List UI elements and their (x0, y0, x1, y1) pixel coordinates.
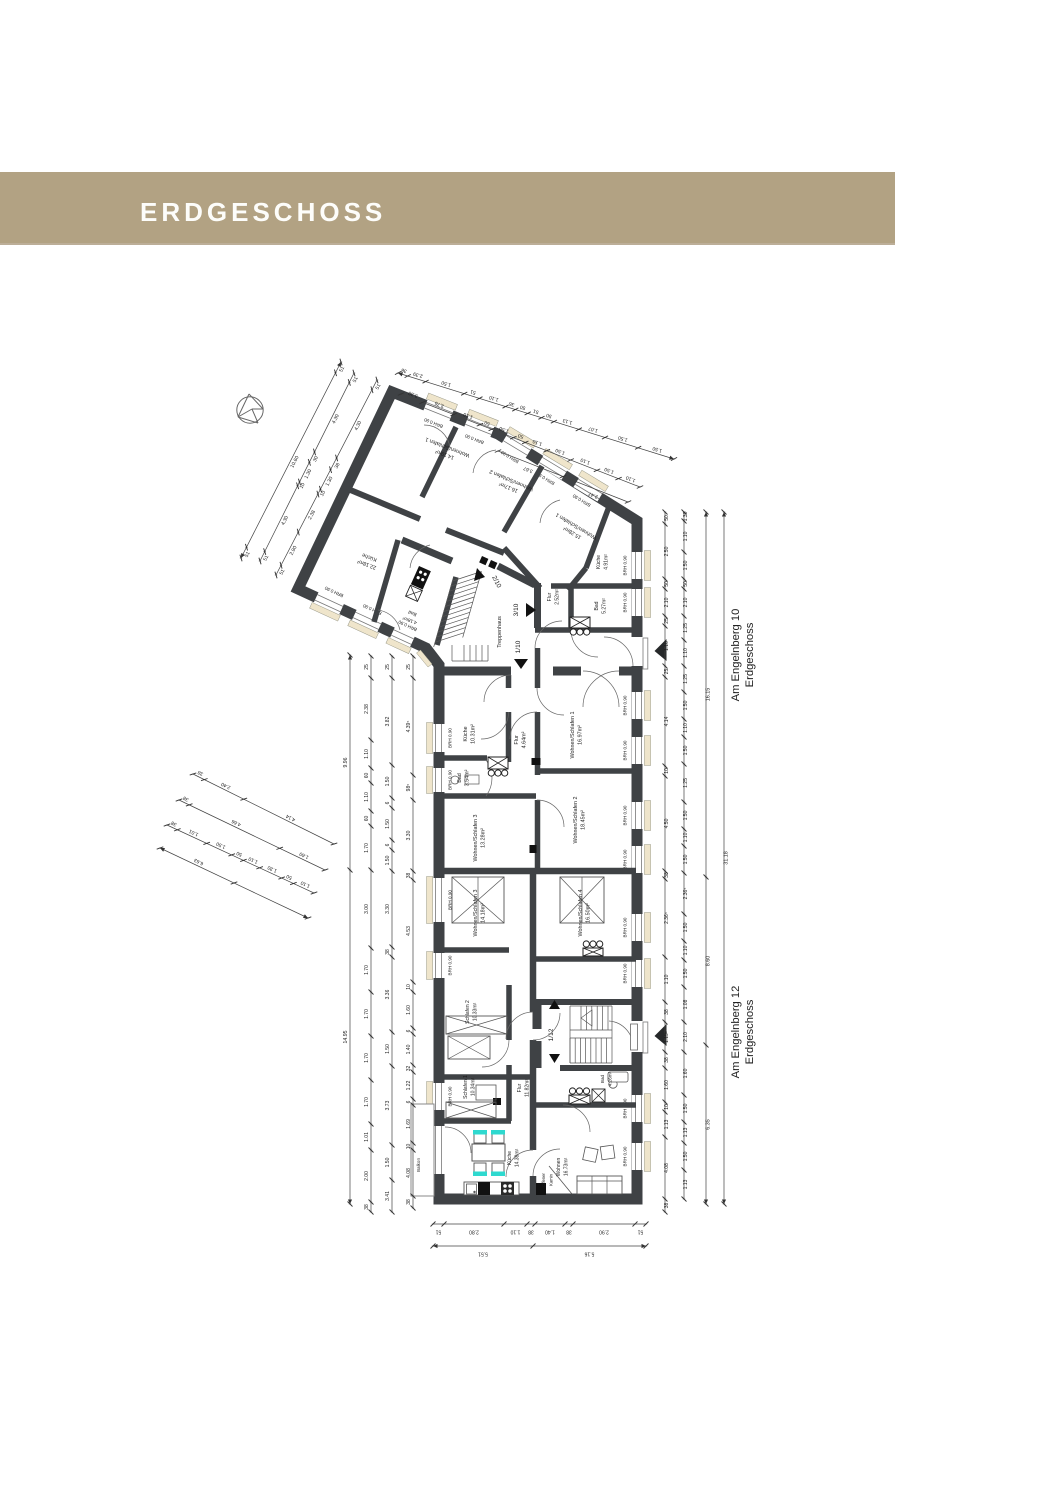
svg-text:50: 50 (664, 515, 670, 521)
svg-text:13.28m²: 13.28m² (481, 828, 487, 848)
svg-text:Küche: Küche (596, 555, 602, 569)
svg-text:6: 6 (385, 843, 391, 846)
svg-text:1.10: 1.10 (364, 792, 370, 802)
svg-text:2.00: 2.00 (364, 1171, 370, 1181)
svg-text:16.15: 16.15 (705, 688, 711, 702)
svg-text:1.10: 1.10 (364, 749, 370, 759)
svg-text:25: 25 (364, 664, 370, 670)
svg-text:1.60: 1.60 (683, 1068, 689, 1078)
svg-text:1.70: 1.70 (364, 843, 370, 853)
svg-text:1.50: 1.50 (385, 776, 391, 786)
svg-text:1.10: 1.10 (683, 531, 689, 541)
svg-text:2.36⁵: 2.36⁵ (683, 888, 689, 900)
svg-text:Treppenhaus: Treppenhaus (497, 616, 503, 648)
svg-text:Erdgeschoss: Erdgeschoss (744, 999, 756, 1064)
svg-text:1/10: 1/10 (515, 640, 522, 653)
svg-text:2.36⁵: 2.36⁵ (664, 912, 670, 924)
svg-text:Bad: Bad (600, 1074, 605, 1083)
svg-text:10.31m²: 10.31m² (471, 724, 477, 744)
svg-text:14.38m²: 14.38m² (515, 1148, 521, 1167)
svg-text:1.60: 1.60 (406, 1005, 412, 1015)
svg-text:BRH 0.90: BRH 0.90 (623, 1098, 628, 1118)
svg-text:BRH 0.90: BRH 0.90 (623, 1146, 628, 1166)
svg-text:1.19⁵: 1.19⁵ (664, 1031, 670, 1043)
svg-text:6: 6 (406, 1100, 412, 1103)
svg-text:1.70: 1.70 (364, 1097, 370, 1107)
svg-text:11.82m²: 11.82m² (525, 1079, 531, 1097)
svg-text:1.70: 1.70 (364, 965, 370, 975)
svg-text:38: 38 (664, 1057, 670, 1063)
svg-text:BRH 0.90: BRH 0.90 (623, 849, 628, 869)
svg-text:4.39⁵: 4.39⁵ (406, 721, 412, 733)
svg-text:2.50: 2.50 (664, 546, 670, 556)
svg-text:6.35: 6.35 (705, 1119, 711, 1130)
svg-text:6: 6 (385, 801, 391, 804)
svg-text:4.14: 4.14 (664, 716, 670, 726)
svg-text:BRH 0.90: BRH 0.90 (623, 917, 628, 937)
svg-text:25: 25 (385, 664, 391, 670)
svg-text:1.50: 1.50 (683, 922, 689, 932)
svg-text:Küche: Küche (463, 726, 469, 741)
svg-text:1.60: 1.60 (664, 1080, 670, 1090)
svg-text:38: 38 (566, 1229, 572, 1235)
svg-text:3.41: 3.41 (385, 1191, 391, 1201)
svg-text:5.27m²: 5.27m² (602, 598, 608, 614)
svg-text:10: 10 (406, 984, 412, 990)
svg-text:1.13: 1.13 (683, 1179, 689, 1189)
svg-text:BRH 0.90: BRH 0.90 (623, 592, 628, 612)
svg-text:31.18: 31.18 (723, 851, 729, 865)
svg-text:98⁵: 98⁵ (406, 784, 412, 792)
svg-text:5.51: 5.51 (478, 1251, 488, 1257)
svg-text:1.10: 1.10 (664, 641, 670, 651)
svg-text:1.50: 1.50 (683, 1151, 689, 1161)
svg-text:38: 38 (385, 949, 391, 955)
svg-text:1.50: 1.50 (683, 968, 689, 978)
svg-text:1.40: 1.40 (406, 1044, 412, 1054)
svg-text:Flur: Flur (517, 1083, 523, 1092)
svg-text:1.50: 1.50 (683, 810, 689, 820)
svg-text:3.73: 3.73 (385, 1100, 391, 1110)
svg-text:51: 51 (436, 1229, 442, 1235)
svg-text:BRH 0.90: BRH 0.90 (448, 770, 453, 790)
svg-text:1.01: 1.01 (364, 1132, 370, 1142)
svg-text:3.30: 3.30 (406, 830, 412, 840)
svg-text:Wohnen/Schlafen 2: Wohnen/Schlafen 2 (573, 797, 579, 844)
svg-text:10.34m²: 10.34m² (471, 1077, 477, 1096)
svg-text:3/10: 3/10 (513, 603, 520, 616)
svg-text:25: 25 (664, 669, 670, 675)
svg-text:ERDGESCHOSS: ERDGESCHOSS (140, 197, 386, 227)
svg-text:60: 60 (364, 816, 370, 822)
svg-text:Flur: Flur (547, 592, 553, 601)
svg-text:3.82: 3.82 (385, 716, 391, 726)
svg-text:Wohnen/Schlafen 3: Wohnen/Schlafen 3 (473, 815, 479, 862)
svg-text:38: 38 (406, 1199, 412, 1205)
svg-text:BRH 0.90: BRH 0.90 (623, 805, 628, 825)
svg-text:1.10: 1.10 (664, 974, 670, 984)
svg-text:9.96: 9.96 (343, 757, 349, 767)
svg-text:BRH 0.90: BRH 0.90 (448, 728, 453, 748)
svg-text:BRH 0.90: BRH 0.90 (623, 963, 628, 983)
svg-text:2.80: 2.80 (469, 1229, 479, 1235)
svg-text:1.22: 1.22 (406, 1080, 412, 1090)
svg-text:2.10: 2.10 (683, 1032, 689, 1042)
svg-text:1.50: 1.50 (683, 854, 689, 864)
svg-text:38: 38 (528, 1229, 534, 1235)
svg-text:BRH 0.90: BRH 0.90 (623, 740, 628, 760)
svg-text:Schlafen 1: Schlafen 1 (463, 1075, 469, 1099)
svg-text:10.33m²: 10.33m² (473, 1002, 479, 1021)
svg-text:32: 32 (406, 1066, 412, 1072)
svg-text:1.50: 1.50 (683, 1103, 689, 1113)
svg-text:1.08: 1.08 (683, 999, 689, 1009)
svg-text:2.52m²: 2.52m² (555, 589, 561, 605)
svg-text:Küche: Küche (507, 1151, 513, 1165)
svg-text:16.97m²: 16.97m² (578, 725, 584, 745)
svg-text:25: 25 (664, 618, 670, 624)
svg-text:6: 6 (406, 1029, 412, 1032)
svg-text:38: 38 (664, 1203, 670, 1209)
svg-text:1.40: 1.40 (545, 1229, 555, 1235)
svg-text:51: 51 (638, 1229, 644, 1235)
svg-text:1.50: 1.50 (385, 1157, 391, 1167)
svg-text:1.10: 1.10 (683, 945, 689, 955)
svg-text:14.95: 14.95 (343, 1030, 349, 1043)
svg-text:5.16: 5.16 (584, 1251, 594, 1257)
svg-text:3.54m²: 3.54m² (465, 769, 471, 786)
svg-text:Wohnen/Schlafen 1: Wohnen/Schlafen 1 (570, 712, 576, 759)
svg-text:4.53: 4.53 (406, 926, 412, 936)
svg-text:4.64m²: 4.64m² (522, 731, 528, 748)
svg-text:4.08: 4.08 (406, 1168, 412, 1178)
svg-text:1.10: 1.10 (510, 1229, 520, 1235)
svg-text:10: 10 (664, 1104, 670, 1110)
svg-text:1.13: 1.13 (664, 1119, 670, 1129)
svg-text:Wohnen: Wohnen (556, 1158, 562, 1177)
svg-text:Balkon: Balkon (416, 1158, 421, 1172)
svg-text:38: 38 (664, 1009, 670, 1015)
svg-text:2.10: 2.10 (664, 597, 670, 607)
svg-text:16.50m²: 16.50m² (586, 903, 592, 923)
svg-text:38: 38 (364, 1204, 370, 1210)
svg-text:10: 10 (664, 768, 670, 774)
svg-text:1.69: 1.69 (406, 1119, 412, 1129)
svg-text:25: 25 (406, 664, 412, 670)
svg-text:8.60: 8.60 (705, 956, 711, 967)
svg-text:BRH 0.90: BRH 0.90 (623, 555, 628, 575)
svg-text:Wohnen/Schlafen 3: Wohnen/Schlafen 3 (473, 890, 479, 937)
svg-text:38: 38 (664, 872, 670, 878)
svg-text:BRH 0.90: BRH 0.90 (623, 695, 628, 715)
svg-text:1.25: 1.25 (683, 674, 689, 684)
svg-text:16.73m²: 16.73m² (564, 1157, 570, 1176)
svg-text:3.30: 3.30 (385, 904, 391, 914)
svg-text:1.50: 1.50 (385, 819, 391, 829)
svg-text:1.50: 1.50 (385, 1044, 391, 1054)
svg-text:Am Engelnberg 10: Am Engelnberg 10 (730, 609, 742, 702)
svg-text:Kamin: Kamin (549, 1173, 554, 1186)
svg-text:4.91m²: 4.91m² (604, 554, 610, 570)
svg-text:38: 38 (406, 873, 412, 879)
svg-text:Schlafen 2: Schlafen 2 (465, 1000, 471, 1024)
svg-text:14.18m²: 14.18m² (481, 903, 487, 923)
svg-text:2.90: 2.90 (599, 1229, 609, 1235)
svg-text:3.00: 3.00 (364, 904, 370, 914)
svg-text:2.38: 2.38 (364, 704, 370, 714)
svg-text:1.25: 1.25 (683, 623, 689, 633)
svg-text:Erdgeschoss: Erdgeschoss (744, 622, 756, 687)
svg-text:1.13: 1.13 (683, 1127, 689, 1137)
svg-text:4.26m²: 4.26m² (608, 1071, 613, 1086)
svg-text:1.10: 1.10 (683, 648, 689, 658)
svg-text:4.50: 4.50 (664, 818, 670, 828)
svg-text:50: 50 (683, 581, 689, 587)
svg-text:1.50: 1.50 (385, 855, 391, 865)
svg-text:Offener: Offener (541, 1172, 546, 1186)
svg-text:18.45m²: 18.45m² (581, 810, 587, 830)
svg-text:1.50: 1.50 (683, 700, 689, 710)
svg-text:1.10: 1.10 (683, 723, 689, 733)
svg-text:10: 10 (406, 1144, 412, 1150)
svg-text:Bad: Bad (594, 601, 600, 610)
svg-text:1.10: 1.10 (683, 832, 689, 842)
svg-text:1.50: 1.50 (683, 560, 689, 570)
svg-text:1.70: 1.70 (364, 1053, 370, 1063)
svg-text:Am Engelnberg 12: Am Engelnberg 12 (730, 986, 742, 1079)
svg-text:60: 60 (364, 773, 370, 779)
svg-text:1.30: 1.30 (683, 511, 689, 521)
svg-text:Wohnen/Schlafen 4: Wohnen/Schlafen 4 (578, 890, 584, 937)
svg-text:4.08: 4.08 (664, 1163, 670, 1173)
svg-text:1.70: 1.70 (364, 1009, 370, 1019)
svg-text:50: 50 (664, 581, 670, 587)
svg-text:3.36: 3.36 (385, 989, 391, 999)
svg-text:2.10: 2.10 (683, 597, 689, 607)
svg-text:BRH 0.90: BRH 0.90 (448, 955, 453, 975)
svg-text:1.25: 1.25 (683, 778, 689, 788)
svg-text:Bad: Bad (457, 773, 463, 783)
svg-text:1.50: 1.50 (683, 745, 689, 755)
svg-text:Flur: Flur (514, 735, 520, 744)
